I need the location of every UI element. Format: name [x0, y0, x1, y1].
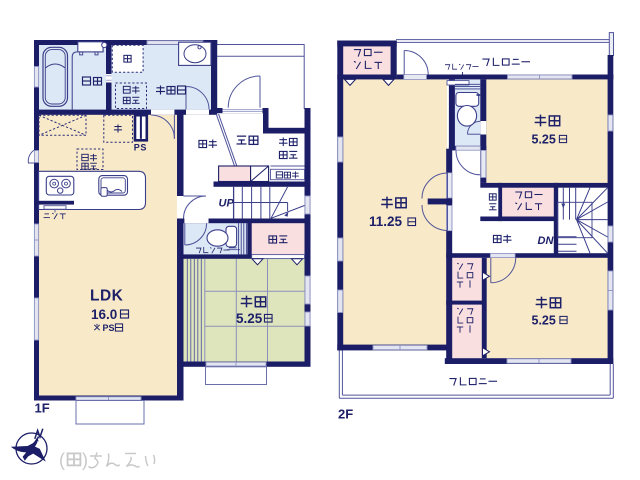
svg-text:): ) — [82, 450, 88, 470]
svg-text:5.25: 5.25 — [532, 133, 556, 147]
svg-text:5.25: 5.25 — [236, 311, 263, 326]
svg-text:16.0: 16.0 — [91, 307, 117, 322]
svg-text:LDK: LDK — [90, 288, 124, 305]
svg-text:UP: UP — [219, 198, 235, 210]
svg-text:11.25: 11.25 — [369, 214, 403, 229]
svg-text:DN: DN — [538, 235, 555, 247]
svg-text:5.25: 5.25 — [532, 314, 556, 328]
svg-text:1F: 1F — [35, 401, 50, 416]
svg-text:PS: PS — [103, 323, 115, 333]
svg-text:2F: 2F — [338, 407, 353, 422]
svg-text:(: ( — [59, 450, 65, 470]
svg-text:PS: PS — [134, 142, 147, 152]
